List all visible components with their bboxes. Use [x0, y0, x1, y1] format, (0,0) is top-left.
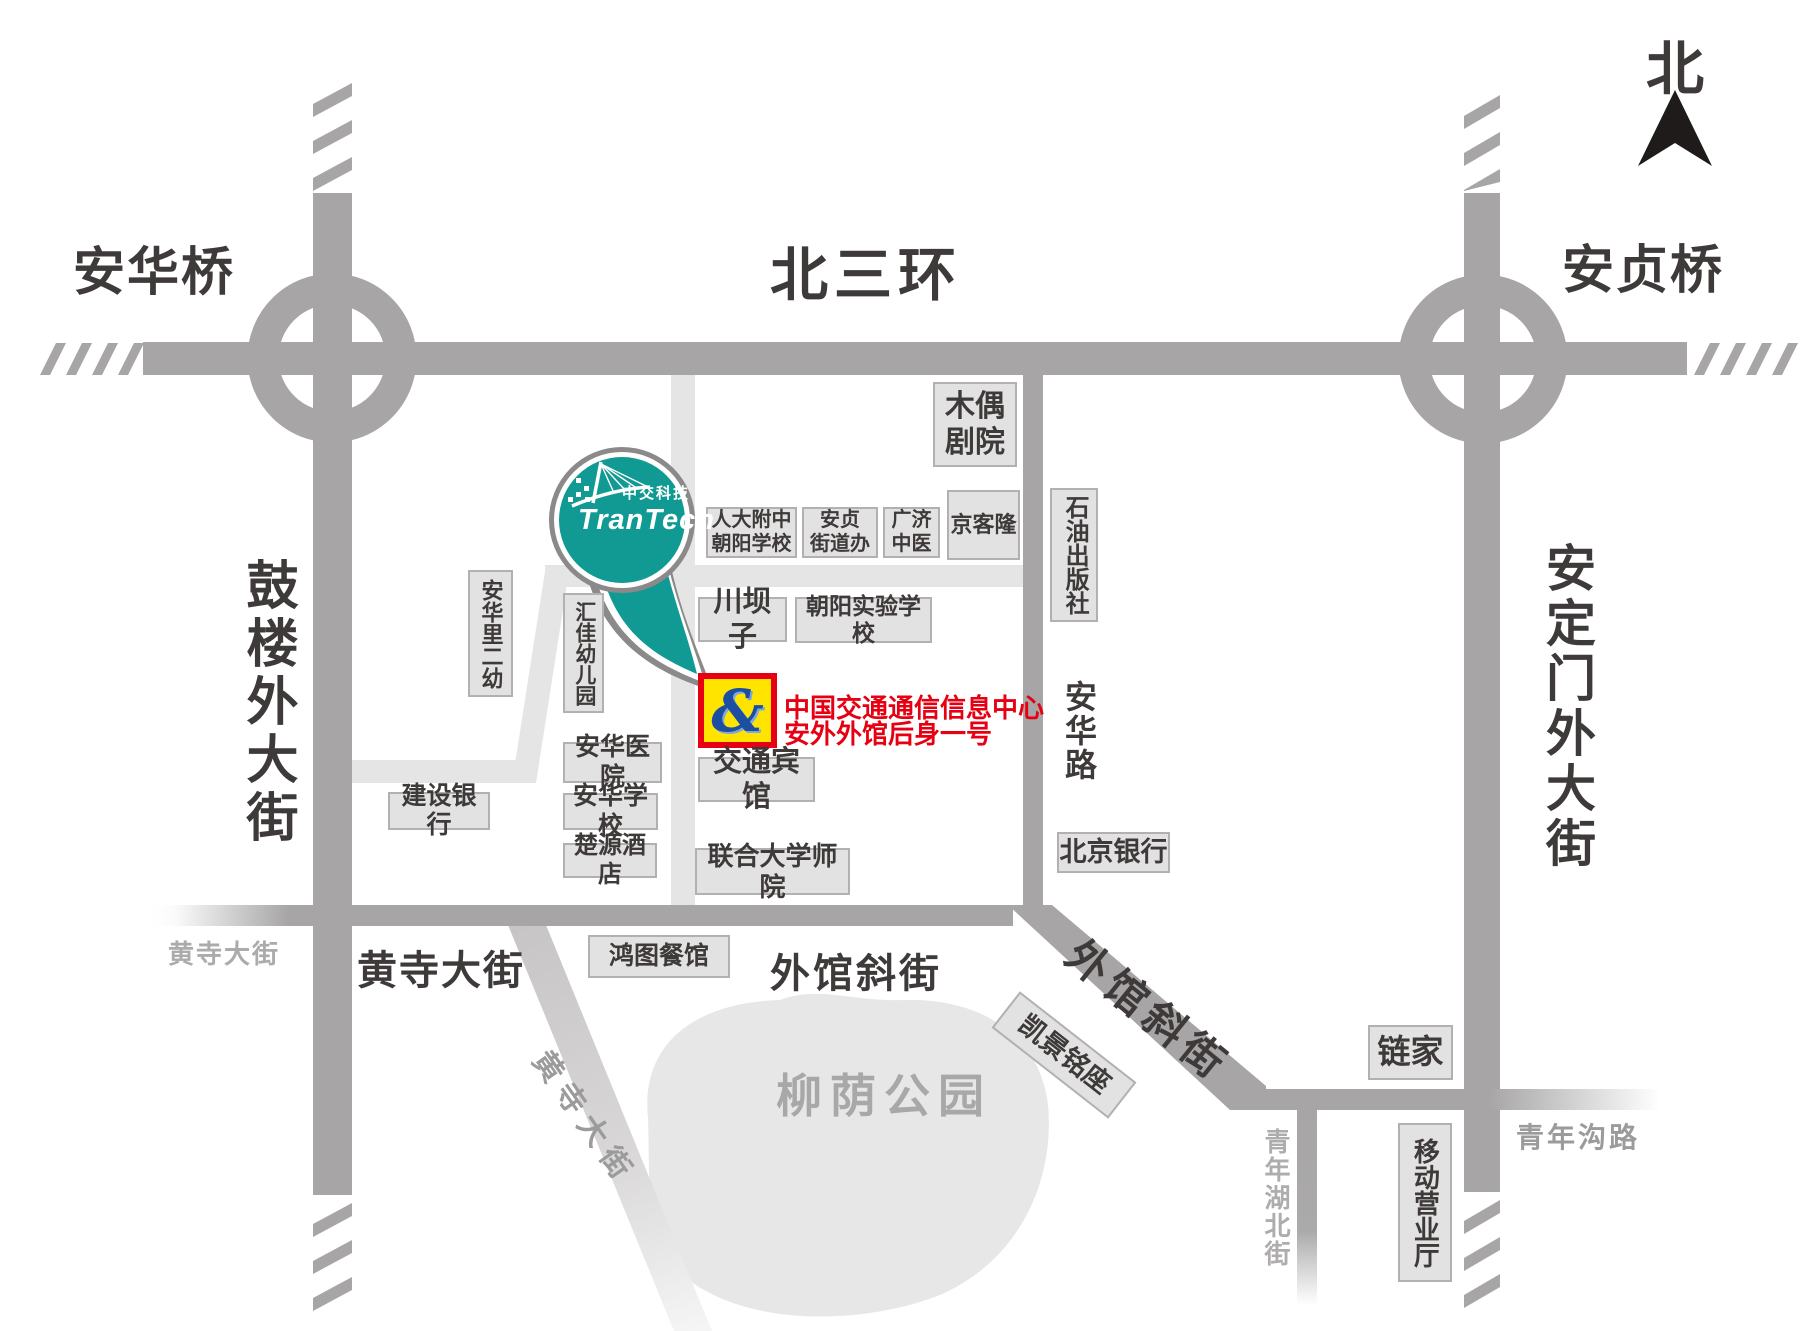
- liuyin-park-area: [647, 994, 1049, 1317]
- huangsi-street-west-fade: [150, 905, 313, 926]
- place-jiaotong-hotel: 交通宾馆: [698, 757, 815, 802]
- place-guangji-clinic: 广济 中医: [883, 507, 940, 558]
- pin-brand-cn: 中交科技: [622, 482, 690, 503]
- place-anhua-hospital: 安华医院: [563, 742, 662, 783]
- andingmen-outer-street-road: [1464, 193, 1500, 1192]
- road-label-waiguan-xiejie: 外馆斜街: [770, 941, 942, 999]
- hatch-northwest: [313, 83, 352, 191]
- road-label-north-third-ring: 北三环: [770, 228, 962, 312]
- place-jianshe-bank: 建设银行: [388, 792, 490, 830]
- hatch-west: [40, 343, 144, 375]
- place-yidong-office: 移动营业厅: [1398, 1123, 1452, 1282]
- pin-brand-en: TranTech: [578, 504, 715, 537]
- place-anzhen-office: 安贞 街道办: [802, 507, 878, 558]
- qingnianhubei-street-road: [1297, 1110, 1317, 1305]
- park-label: 柳荫公园: [776, 1060, 992, 1126]
- waiguan-xiejie-road: [313, 905, 1013, 926]
- place-muou-theater: 木偶 剧院: [933, 382, 1017, 467]
- place-jingkelong: 京客隆: [947, 490, 1020, 560]
- place-hongtu-restaurant: 鸿图餐馆: [588, 935, 730, 978]
- place-lianhe-university: 联合大学师院: [695, 848, 850, 895]
- place-anhua-school: 安华学校: [563, 793, 658, 830]
- hatch-southeast: [1464, 1200, 1500, 1308]
- road-label-qingnianhubei: 青年湖北街: [1258, 1128, 1295, 1268]
- road-label-huangsi-street: 黄寺大街: [357, 938, 525, 996]
- hatch-northeast: [1464, 95, 1500, 191]
- road-label-anhua-road: 安华路: [1056, 680, 1102, 782]
- compass-north-label: 北: [1646, 22, 1704, 106]
- place-shiyou-press: 石油出版社: [1050, 488, 1098, 622]
- cttic-logo-icon: &: [698, 673, 777, 748]
- minor-road-diagonal: [512, 565, 570, 783]
- gulou-outer-street-road: [313, 193, 352, 1195]
- road-label-huangsi-street-faded: 黄寺大街: [168, 934, 280, 971]
- hatch-southwest: [313, 1203, 352, 1311]
- place-chaoyang-school: 朝阳实验学校: [795, 597, 932, 643]
- place-chuyuan-hotel: 楚源酒店: [563, 843, 657, 878]
- anhua-road: [1023, 375, 1043, 908]
- road-label-gulou-outer-street: 鼓楼外大街: [230, 558, 305, 848]
- place-lianjia: 链家: [1368, 1025, 1453, 1080]
- place-chuanbazi: 川坝子: [698, 597, 787, 642]
- place-anhuali-kindergarten: 安华里二幼: [468, 570, 513, 697]
- place-huijia-kindergarten: 汇佳幼儿园: [563, 593, 604, 713]
- north-third-ring-road: [143, 342, 1687, 375]
- minor-road-west: [352, 760, 535, 783]
- map-canvas: 北三环 安华桥 安贞桥 鼓楼外大街 安定门外大街 安华路 黄寺大街 黄寺大街 黄…: [0, 0, 1808, 1331]
- road-label-andingmen-outer-street: 安定门外大街: [1531, 542, 1603, 872]
- qingniangou-road: [1232, 1089, 1660, 1110]
- road-label-qingniangou: 青年沟路: [1516, 1116, 1640, 1156]
- destination-line2: 安外外馆后身一号: [784, 714, 992, 751]
- road-label-anzhen-bridge: 安贞桥: [1562, 228, 1724, 303]
- road-label-anhua-bridge: 安华桥: [73, 230, 235, 305]
- place-beijing-bank: 北京银行: [1057, 832, 1170, 873]
- hatch-east: [1694, 343, 1798, 375]
- place-renda-school: 人大附中 朝阳学校: [706, 507, 797, 558]
